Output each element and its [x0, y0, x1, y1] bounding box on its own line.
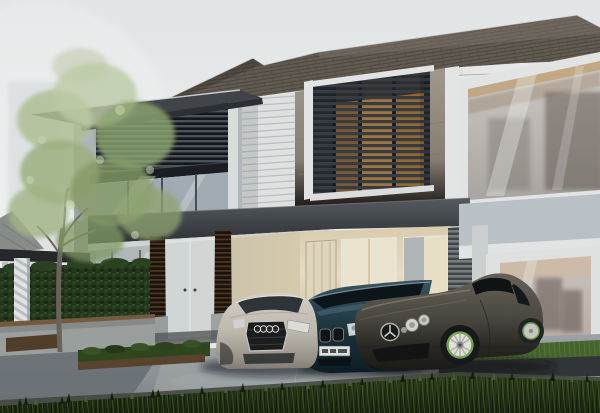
architectural-rendering [0, 0, 600, 413]
dusk-overlay [0, 0, 600, 413]
rendering-canvas [0, 0, 600, 413]
